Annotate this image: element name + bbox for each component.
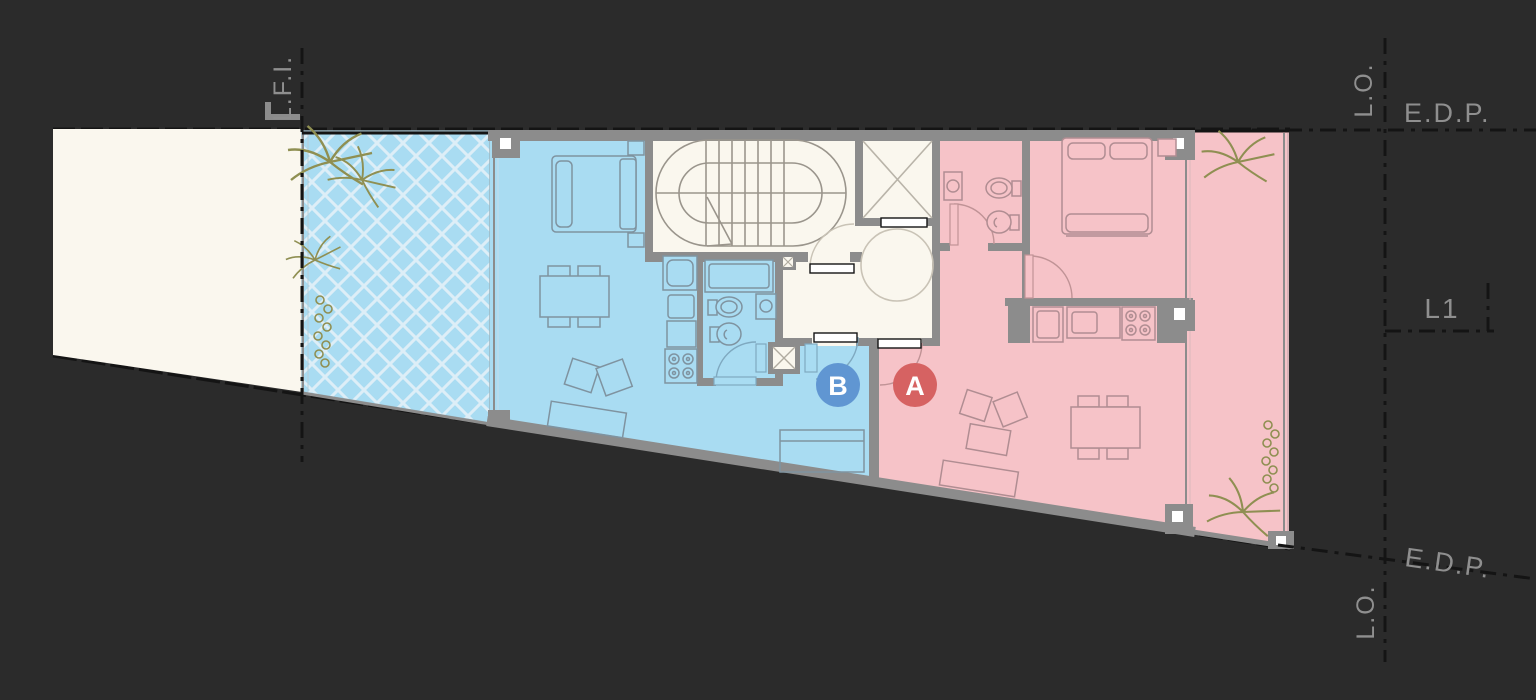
unit-b-badge: B: [816, 363, 860, 407]
lo-top-label: L.O.: [1350, 62, 1378, 117]
courtyard: [302, 131, 490, 424]
level-label: L1: [1424, 293, 1459, 324]
lfi-label: L.F.I.: [269, 55, 297, 121]
edp-top-label: E.D.P.: [1404, 98, 1491, 128]
unit-b-badge-letter: B: [828, 371, 848, 401]
unit-a-badge: A: [893, 363, 937, 407]
unit-a-badge-letter: A: [905, 371, 925, 401]
lo-bottom-label: L.O.: [1352, 584, 1380, 639]
front-yard: [53, 129, 302, 392]
floor-plan-canvas: L.F.I. L.O. E.D.P. L1 E.D.P. L.O. B A: [0, 0, 1536, 700]
floor-plan-svg: L.F.I. L.O. E.D.P. L1 E.D.P. L.O. B A: [0, 0, 1536, 700]
